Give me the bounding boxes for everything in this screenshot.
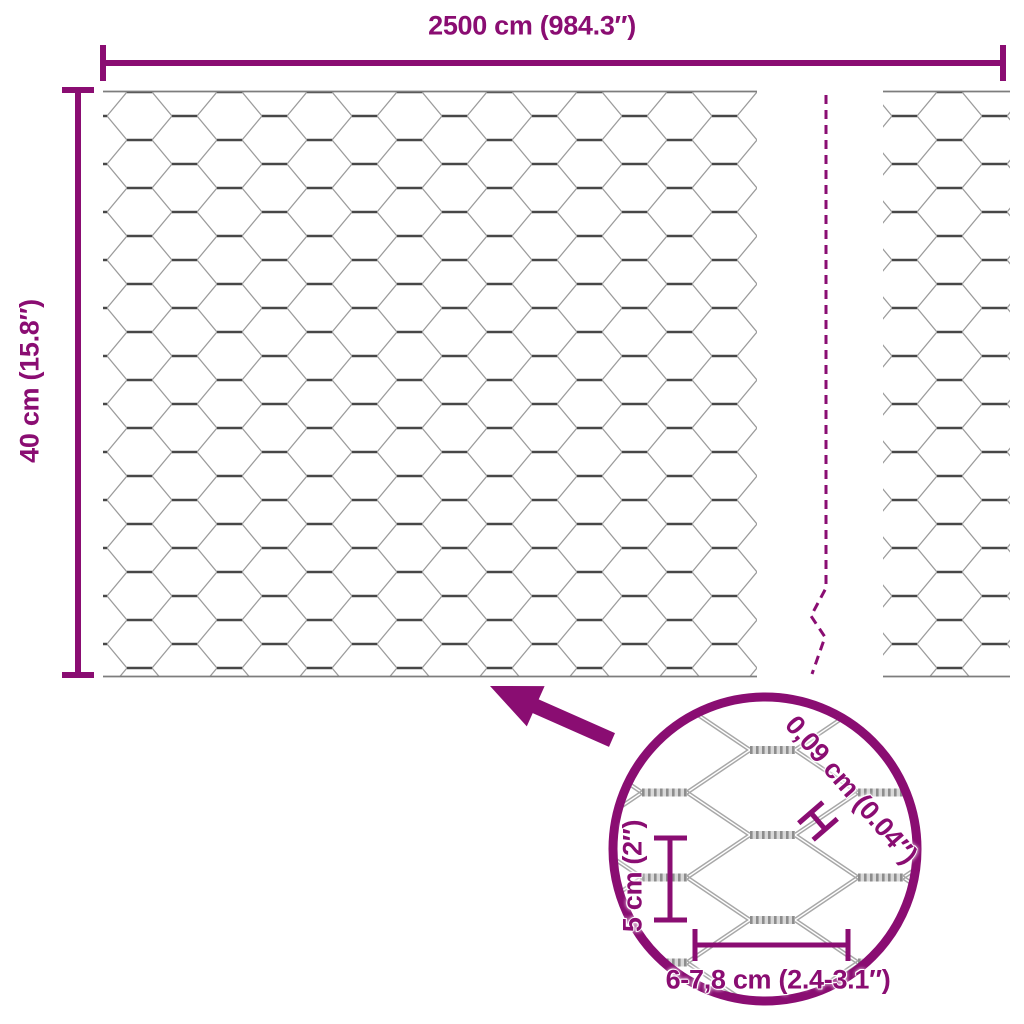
height-dimension-label: 40 cm (15.8″) (15, 299, 46, 463)
product-dimension-diagram: 2500 cm (984.3″) 40 cm (15.8″) 0,09 cm (… (0, 0, 1024, 1024)
break-line (811, 95, 826, 674)
mesh-panel-right (883, 91, 1010, 677)
zoom-arrow-icon (490, 686, 615, 747)
cell-height-label: 5 cm (2″) (618, 820, 649, 932)
width-dimension-label: 2500 cm (984.3″) (428, 11, 636, 42)
cell-width-label: 6-7,8 cm (2.4-3.1″) (666, 965, 891, 996)
diagram-canvas (0, 0, 1024, 1024)
width-dimension-line (103, 45, 1003, 81)
height-dimension-line (62, 90, 94, 675)
mesh-panel-main (103, 91, 757, 677)
